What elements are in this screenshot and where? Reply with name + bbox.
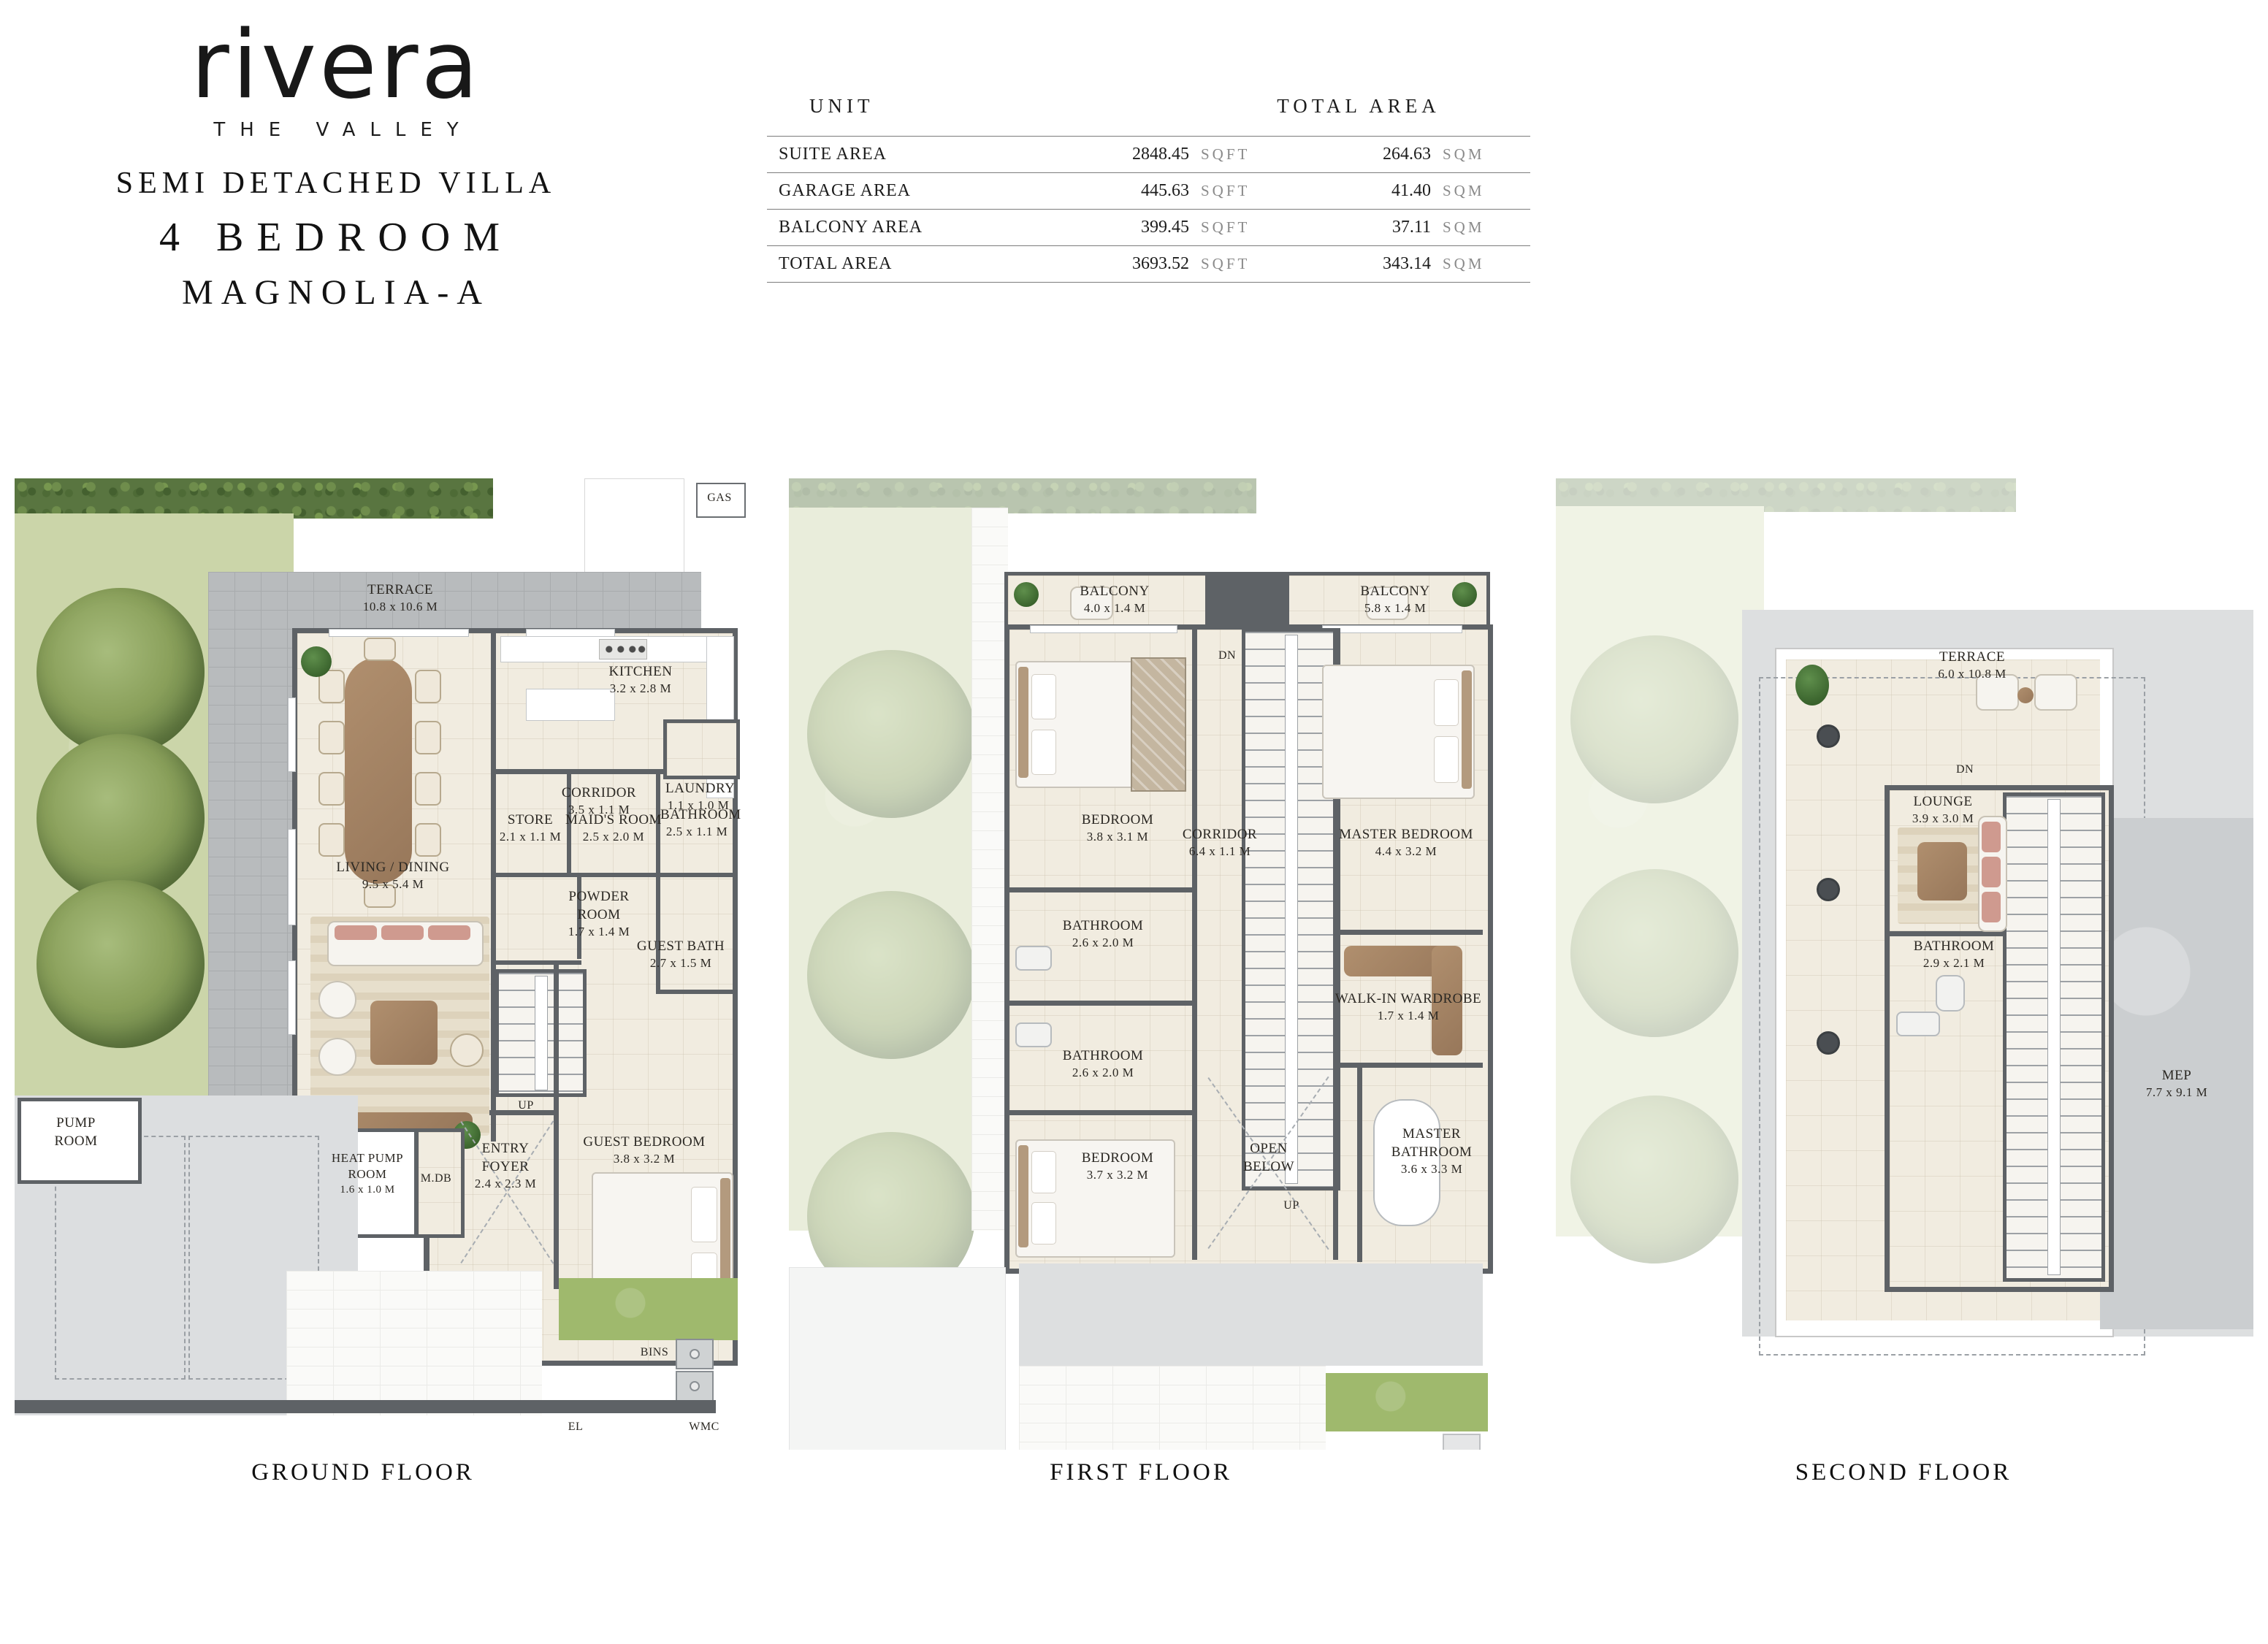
staircase [495,969,587,1097]
room-dims: 2.5 x 1.1 M [660,824,733,840]
room-name: CORRIDOR [1183,827,1257,842]
room-label-bathroom-1: BATHROOM2.6 x 2.0 M [1063,917,1144,952]
room-name: WALK-IN WARDROBE [1335,991,1481,1006]
dining-chair [318,721,345,754]
room-dims: 3.7 x 3.2 M [1082,1167,1154,1183]
room-name: BATHROOM [1063,918,1144,933]
plant [1795,665,1829,706]
room-name: STORE [508,812,553,827]
room-label-balcony-left: BALCONY4.0 x 1.4 M [1080,582,1149,617]
wardrobe [1131,657,1186,792]
bathroom-sink [1015,1022,1052,1047]
garden-tree [37,734,205,902]
wall [1333,1063,1483,1068]
sqft-unit: SQFT [1189,255,1310,273]
side-garden-patch [559,1278,738,1340]
plant [1014,582,1039,607]
room-label-entry-foyer: ENTRY FOYER2.4 x 2.3 M [469,1139,542,1193]
dining-chair [415,670,441,703]
second-floor-plan: TERRACE6.0 x 10.8 M DN LOUNGE3.9 x 3.0 M… [1556,478,2268,1450]
room-label-powder-room: POWDER ROOM1.7 x 1.4 M [559,887,639,941]
wall [491,873,733,877]
col-header-unit: UNIT [809,95,874,118]
stair-label-up: UP [1283,1198,1299,1213]
wall [491,960,581,965]
row-label: GARAGE AREA [767,181,1054,201]
room-name: BALCONY [1360,584,1429,599]
room-label-bathroom: BATHROOM2.9 x 2.1 M [1914,937,1995,972]
room-label-bathroom: BATHROOM2.5 x 1.1 M [660,806,733,841]
window [288,697,296,772]
stair-label-dn: DN [1956,762,1974,777]
bed-headboard [1462,670,1472,789]
room-name: BATHROOM [1914,938,1995,954]
dining-chair [364,638,396,661]
room-dims: 2.9 x 2.1 M [1914,955,1995,971]
room-label-living-dining: LIVING / DINING9.5 x 5.4 M [336,858,449,893]
terrace-column [1817,878,1840,901]
sqm-unit: SQM [1431,255,1530,273]
sqft-unit: SQFT [1189,145,1310,164]
room-label-gas: GAS [707,490,732,505]
dining-chair [318,772,345,806]
room-label-maids-room: MAID'S ROOM2.5 x 2.0 M [565,811,662,846]
room-dims: 2.4 x 2.3 M [469,1176,542,1192]
entry-path-faded [1019,1366,1326,1450]
sofa-cushion [1982,892,2001,922]
stair-label-up: UP [518,1098,533,1113]
room-label-bedroom-1: BEDROOM3.8 x 3.1 M [1082,811,1154,846]
sqft-value: 445.63 [1054,181,1189,201]
wall [1004,887,1197,892]
col-header-total-area: TOTAL AREA [1205,95,1512,118]
bed-pillow [1434,736,1459,783]
room-name: BEDROOM [1082,1150,1154,1166]
sqm-value: 37.11 [1310,218,1431,237]
area-table: UNIT TOTAL AREA SUITE AREA 2848.45 SQFT … [767,82,1530,283]
sofa-cushion [381,925,424,940]
bathroom-sink [1015,946,1052,971]
caption-ground-floor: GROUND FLOOR [144,1459,582,1486]
table-row-balcony-area: BALCONY AREA 399.45 SQFT 37.11 SQM [767,209,1530,245]
dining-table [345,657,412,884]
plant [1452,582,1477,607]
sofa-cushion [1982,822,2001,852]
room-dims: 1.7 x 1.4 M [1335,1008,1481,1024]
sqm-unit: SQM [1431,182,1530,200]
bed-pillow [1031,674,1056,719]
room-name: OPEN BELOW [1243,1141,1294,1174]
room-dims: 1.7 x 1.4 M [559,924,639,940]
sqft-value: 3693.52 [1054,254,1189,274]
room-dims: 2.5 x 2.0 M [565,829,662,845]
room-name: CORRIDOR [562,785,636,800]
room-dims: 3.2 x 2.8 M [609,681,673,697]
sqft-unit: SQFT [1189,218,1310,237]
logo-tagline: THE VALLEY [80,119,592,141]
armchair [318,1038,356,1076]
entry-path [286,1271,542,1415]
garden-tree-faded [1570,1096,1738,1263]
side-path [971,508,1008,1231]
room-label-master-bathroom: MASTER BATHROOM3.6 x 3.3 M [1384,1125,1479,1178]
room-dims: 3.6 x 3.3 M [1384,1161,1479,1177]
room-label-kitchen: KITCHEN3.2 x 2.8 M [609,662,673,697]
room-dims: 3.8 x 3.2 M [583,1151,705,1167]
room-dims: 7.7 x 9.1 M [2146,1085,2207,1101]
room-label-mep: MEP7.7 x 9.1 M [2146,1066,2207,1101]
sliding-door [329,629,469,637]
room-label-balcony-right: BALCONY5.8 x 1.4 M [1360,582,1429,617]
unit-name-title: MAGNOLIA-A [80,272,592,313]
wall [1885,931,2005,936]
table-row-garage-area: GARAGE AREA 445.63 SQFT 41.40 SQM [767,172,1530,209]
label-open-below: OPEN BELOW [1240,1139,1298,1176]
window [1030,625,1177,633]
roof-strip [1019,1263,1483,1366]
sqft-value: 2848.45 [1054,145,1189,164]
terrace-column [1817,1031,1840,1055]
dining-chair [318,823,345,857]
label-wmc: WMC [689,1419,719,1434]
bed-pillow [1031,1151,1056,1193]
wall [1004,1110,1197,1115]
room-dims: 6.4 x 1.1 M [1180,844,1260,860]
sofa-cushion [1982,857,2001,887]
dining-chair [415,772,441,806]
room-name: ENTRY FOYER [482,1141,530,1174]
room-dims: 4.0 x 1.4 M [1080,600,1149,616]
room-label-walk-in-wardrobe: WALK-IN WARDROBE1.7 x 1.4 M [1335,990,1481,1025]
hedge-row [15,478,493,519]
master-bed [1322,665,1475,799]
room-name: MASTER BATHROOM [1391,1126,1473,1160]
garden-tree-faded [1570,635,1738,803]
room-name: GUEST BEDROOM [583,1134,705,1150]
label-el: EL [568,1419,584,1434]
room-dims: 10.8 x 10.6 M [363,599,438,615]
garden-tree-faded [1570,869,1738,1037]
caption-first-floor: FIRST FLOOR [922,1459,1360,1486]
dining-chair [415,721,441,754]
room-name: PUMP ROOM [54,1115,97,1149]
room-dims: 1.6 x 1.0 M [327,1183,408,1198]
coffee-table [1917,842,1967,901]
table-row-total-area: TOTAL AREA 3693.52 SQFT 343.14 SQM [767,245,1530,283]
brand-block: rivera THE VALLEY SEMI DETACHED VILLA 4 … [80,15,592,313]
room-dims: 4.4 x 3.2 M [1339,844,1473,860]
driveway-faded [789,1267,1006,1450]
side-garden-patch [1326,1373,1488,1431]
room-dims: 2.6 x 2.0 M [1063,935,1144,951]
room-dims: 6.0 x 10.8 M [1938,666,2006,682]
room-name: GUEST BATH [637,938,725,954]
wall [1004,1001,1197,1006]
bin-lid [690,1349,700,1359]
entry-walkway [584,478,684,573]
room-name: TERRACE [367,582,433,597]
room-label-terrace: TERRACE10.8 x 10.6 M [363,581,438,616]
room-name: BATHROOM [660,807,741,822]
garden-tree [37,588,205,756]
boundary-wall [15,1400,716,1413]
room-dims: 2.6 x 2.0 M [1063,1065,1144,1081]
sofa-cushion [335,925,377,940]
wall [1192,628,1197,1260]
bin [676,1339,714,1369]
room-label-terrace: TERRACE6.0 x 10.8 M [1938,648,2006,683]
bathroom-sink [1896,1012,1940,1036]
room-dims: 3.9 x 3.0 M [1912,811,1974,827]
wall [656,877,660,993]
dining-chair [415,823,441,857]
room-label-bathroom-2: BATHROOM2.6 x 2.0 M [1063,1047,1144,1082]
room-label-guest-bath: GUEST BATH2.7 x 1.5 M [637,937,725,972]
room-name: LOUNGE [1913,794,1972,809]
bed-pillow [1031,1202,1056,1245]
row-label: TOTAL AREA [767,254,1054,274]
laundry-room [663,719,740,779]
room-dims: 3.8 x 3.1 M [1082,829,1154,845]
row-label: BALCONY AREA [767,218,1054,237]
window [1322,625,1462,633]
wall [656,990,733,994]
table-row-suite-area: SUITE AREA 2848.45 SQFT 264.63 SQM [767,136,1530,172]
armchair [318,981,356,1019]
bed-headboard [1018,667,1028,778]
room-name: MEP [2162,1068,2192,1083]
ground-floor-plan: GAS TERRACE10.8 x 10.6 M KITCHEN3.2 x 2.… [15,478,763,1453]
room-name: LAUNDRY [665,781,735,796]
room-dims: 2.7 x 1.5 M [637,955,725,971]
coffee-table [370,1001,438,1065]
terrace-paving-side [208,572,294,1096]
sqft-unit: SQFT [1189,182,1310,200]
bin [676,1371,714,1402]
wall [1205,576,1289,628]
area-table-header: UNIT TOTAL AREA [767,82,1530,136]
wall [1357,1066,1362,1262]
bed-pillow [691,1187,717,1242]
wall [1333,930,1483,935]
room-name: HEAT PUMP ROOM [332,1151,403,1181]
room-name: TERRACE [1939,649,2005,665]
room-label-guest-bedroom: GUEST BEDROOM3.8 x 3.2 M [583,1133,705,1168]
room-dims: 5.8 x 1.4 M [1360,600,1429,616]
toilet [1936,975,1965,1012]
sqft-value: 399.45 [1054,218,1189,237]
window [288,960,296,1035]
stair-stringer [2047,799,2061,1275]
bed-pillow [1434,679,1459,726]
bed-headboard [1018,1145,1028,1247]
sofa-cushion [428,925,470,940]
room-name: KITCHEN [609,664,673,679]
window [288,829,296,925]
villa-type-title: SEMI DETACHED VILLA [80,166,592,201]
room-name: BALCONY [1080,584,1149,599]
stair-stringer [535,976,548,1090]
garden-tree-faded [807,650,975,818]
bed-pillow [1031,730,1056,775]
room-label-bedroom-2: BEDROOM3.7 x 3.2 M [1082,1149,1154,1184]
wall [554,960,559,1289]
sqm-unit: SQM [1431,145,1530,164]
room-label-corridor: CORRIDOR6.4 x 1.1 M [1180,825,1260,860]
stair-label-dn: DN [1218,648,1236,663]
room-name: BATHROOM [1063,1048,1144,1063]
room-label-pump-room: PUMP ROOM [43,1114,109,1150]
bin-lid [690,1381,700,1391]
room-dims: 2.1 x 1.1 M [500,829,561,845]
cooktop [599,639,647,659]
room-label-lounge: LOUNGE3.9 x 3.0 M [1912,792,1974,827]
brochure-page: { "brand": { "logo": "rivera", "tagline"… [0,0,2268,1644]
room-name: LIVING / DINING [336,860,449,875]
sqm-value: 343.14 [1310,254,1431,274]
room-label-heat-pump-room: HEAT PUMP ROOM1.6 x 1.0 M [327,1150,408,1198]
kitchen-island [526,689,615,721]
side-table [2017,687,2034,703]
room-label-mdb: M.DB [421,1171,451,1186]
staircase [2003,792,2105,1282]
room-label-store: STORE2.1 x 1.1 M [500,811,561,846]
lounge-chair [2034,674,2077,711]
caption-second-floor: SECOND FLOOR [1684,1459,2123,1486]
first-floor-plan: BALCONY4.0 x 1.4 M BALCONY5.8 x 1.4 M DN… [789,478,1530,1450]
bedroom-count-title: 4 BEDROOM [80,214,592,261]
room-dims: 9.5 x 5.4 M [336,876,449,892]
plant [301,646,332,677]
row-label: SUITE AREA [767,145,1054,164]
sqm-value: 41.40 [1310,181,1431,201]
room-name: MASTER BEDROOM [1339,827,1473,842]
terrace-column [1817,724,1840,748]
room-name: POWDER ROOM [568,889,629,922]
ottoman [450,1033,484,1067]
garden-tree [37,880,205,1048]
logo-rivera: rivera [80,15,592,118]
room-label-master-bedroom: MASTER BEDROOM4.4 x 3.2 M [1339,825,1473,860]
room-name: BEDROOM [1082,812,1154,827]
label-bins: BINS [641,1345,668,1360]
sqm-value: 264.63 [1310,145,1431,164]
room-name: MAID'S ROOM [565,812,662,827]
sqm-unit: SQM [1431,218,1530,237]
bin-faded [1443,1434,1481,1450]
garden-tree-faded [807,891,975,1059]
